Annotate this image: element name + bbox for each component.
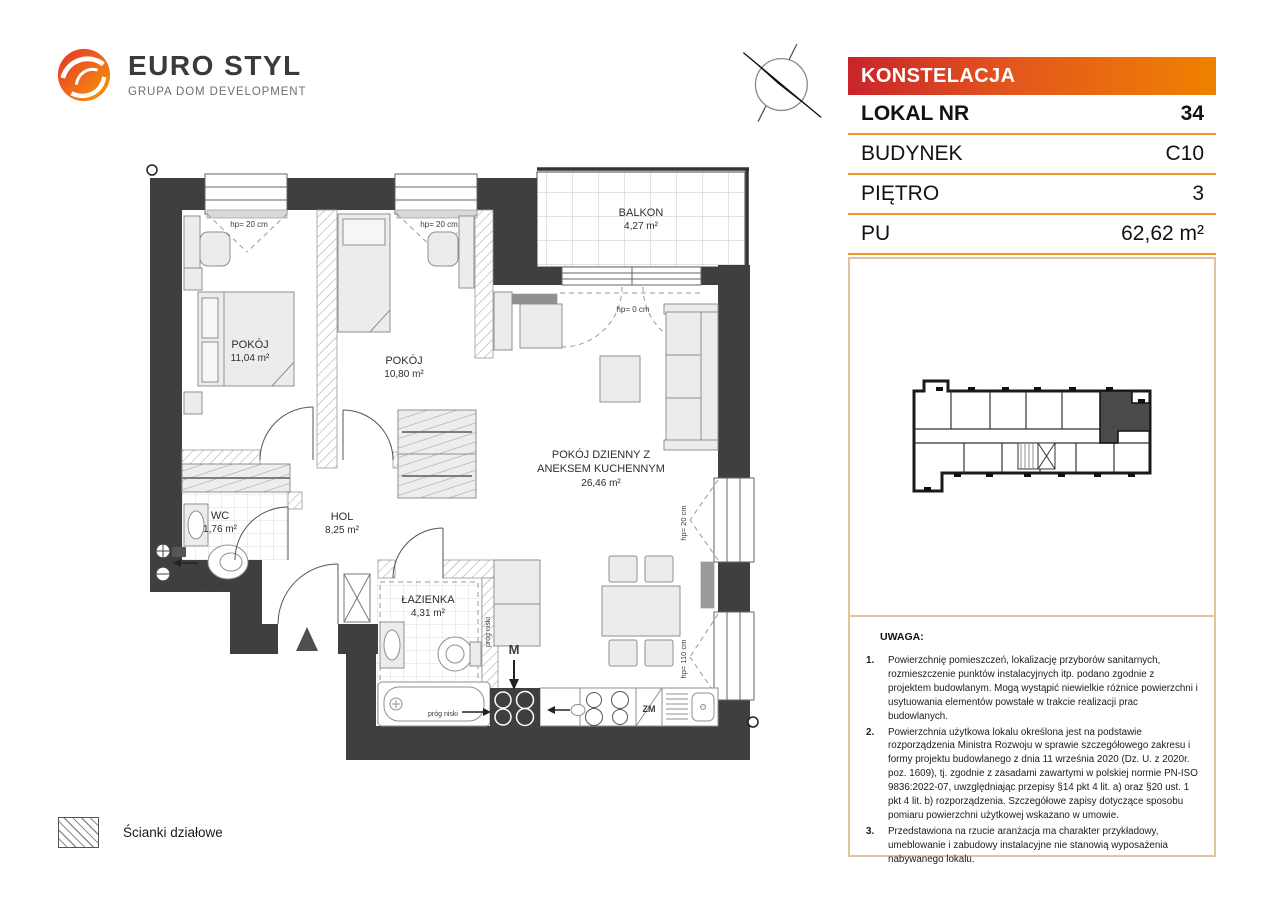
note-number: 2. <box>866 726 879 823</box>
chair <box>609 556 637 582</box>
tv-cabinet <box>494 292 512 350</box>
chair <box>200 232 230 266</box>
sideboard <box>520 304 562 348</box>
room-label: HOL <box>331 511 354 523</box>
dishwasher-label: ZM <box>643 704 656 714</box>
washing-machine-label: M <box>509 642 520 657</box>
row-value: 3 <box>1192 182 1204 206</box>
kettle <box>571 705 585 716</box>
notes-section: UWAGA: 1. Powierzchnię pomieszczeń, loka… <box>848 617 1216 857</box>
coffee-table <box>600 356 640 402</box>
threshold-label: próg niski <box>485 617 492 647</box>
row-label: PU <box>861 222 890 246</box>
table-row-lokal: LOKAL NR 34 <box>848 95 1216 135</box>
room-area: 4,31 m² <box>411 608 446 619</box>
unit-info-table: KONSTELACJA LOKAL NR 34 BUDYNEK C10 PIĘT… <box>848 57 1216 255</box>
note-number: 3. <box>866 825 879 867</box>
installation-shaft <box>344 574 370 622</box>
burner <box>612 692 629 709</box>
nightstand <box>184 268 202 290</box>
note-item: 3. Przedstawiona na rzucie aranżacja ma … <box>866 825 1200 867</box>
burner <box>613 710 628 725</box>
chair <box>428 232 458 266</box>
sill-height-label: hp= 110 cm <box>679 640 688 679</box>
building-minimap-box <box>848 257 1216 617</box>
table-row-budynek: BUDYNEK C10 <box>848 135 1216 175</box>
apartment-floor-plan: POKÓJ 11,04 m² POKÓJ 10,80 m² POKÓJ DZIE… <box>140 148 765 796</box>
burner <box>586 709 603 726</box>
nightstand <box>184 392 202 414</box>
room-area: 10,80 m² <box>384 369 424 380</box>
note-item: 2. Powierzchnia użytkowa lokalu określon… <box>866 726 1200 823</box>
room-area: 26,46 m² <box>581 478 621 489</box>
row-label: LOKAL NR <box>861 102 969 126</box>
room-label: POKÓJ <box>231 338 268 351</box>
chair <box>645 556 673 582</box>
row-label: PIĘTRO <box>861 182 939 206</box>
room-label: BALKON <box>619 207 664 219</box>
row-value: 34 <box>1181 102 1204 126</box>
note-text: Przedstawiona na rzucie aranżacja ma cha… <box>888 825 1200 867</box>
pillow <box>202 298 218 338</box>
building-outline-map <box>906 369 1162 504</box>
cistern <box>470 642 481 666</box>
project-name-bar: KONSTELACJA <box>848 57 1216 95</box>
table-row-pu: PU 62,62 m² <box>848 215 1216 255</box>
entrance-marker <box>296 627 318 651</box>
note-text: Powierzchnię pomieszczeń, lokalizację pr… <box>888 654 1200 724</box>
notes-heading: UWAGA: <box>880 631 1200 643</box>
sofa-armrest <box>664 440 718 450</box>
room-label: POKÓJ <box>385 354 422 367</box>
fridge-cabinet <box>494 560 540 646</box>
sill-height-label: hp= 20 cm <box>679 505 688 540</box>
logo-subtitle: GRUPA DOM DEVELOPMENT <box>128 86 306 98</box>
kitchen-counter <box>540 688 718 726</box>
note-item: 1. Powierzchnię pomieszczeń, lokalizację… <box>866 654 1200 724</box>
pillow <box>343 219 385 245</box>
logo-title: EURO STYL <box>128 52 306 80</box>
legend-label: Ścianki działowe <box>123 825 223 840</box>
note-text: Powierzchnia użytkowa lokalu określona j… <box>888 726 1200 823</box>
note-number: 1. <box>866 654 879 724</box>
room-label: POKÓJ DZIENNY Z <box>552 448 650 461</box>
room-area: 4,27 m² <box>624 221 659 232</box>
chair <box>609 640 637 666</box>
sill-height-label: hp= 20 cm <box>420 220 458 229</box>
threshold-label: próg niski <box>428 711 458 718</box>
legend: Ścianki działowe <box>58 817 223 848</box>
room-label: ŁAZIENKA <box>401 594 455 606</box>
north-arrow-icon <box>733 30 828 140</box>
row-label: BUDYNEK <box>861 142 963 166</box>
pillow <box>202 342 218 382</box>
sofa <box>666 312 718 442</box>
table-row-pietro: PIĘTRO 3 <box>848 175 1216 215</box>
floor-plan-card: EURO STYL GRUPA DOM DEVELOPMENT KONSTELA… <box>0 0 1273 900</box>
corner-marker <box>147 165 157 175</box>
row-value: 62,62 m² <box>1121 222 1204 246</box>
flame-logo-icon <box>55 46 113 104</box>
room-area: 8,25 m² <box>325 525 360 536</box>
partition-wall-hatch-icon <box>58 817 99 848</box>
room-area: 11,04 m² <box>231 353 270 364</box>
burner <box>587 693 602 708</box>
euro-styl-logo: EURO STYL GRUPA DOM DEVELOPMENT <box>55 46 306 104</box>
sill-height-label: hp= 20 cm <box>230 220 268 229</box>
chair <box>645 640 673 666</box>
threshold-label: próg niski <box>198 583 228 590</box>
corner-marker <box>748 717 758 727</box>
desk <box>459 216 474 288</box>
room-label: ANEKSEM KUCHENNYM <box>537 463 665 475</box>
dining-table <box>602 586 680 636</box>
room-label: WC <box>211 510 229 522</box>
room-area: 1,76 m² <box>203 524 238 535</box>
row-value: C10 <box>1165 142 1204 166</box>
sill-height-label: hp= 0 cm <box>616 305 649 314</box>
